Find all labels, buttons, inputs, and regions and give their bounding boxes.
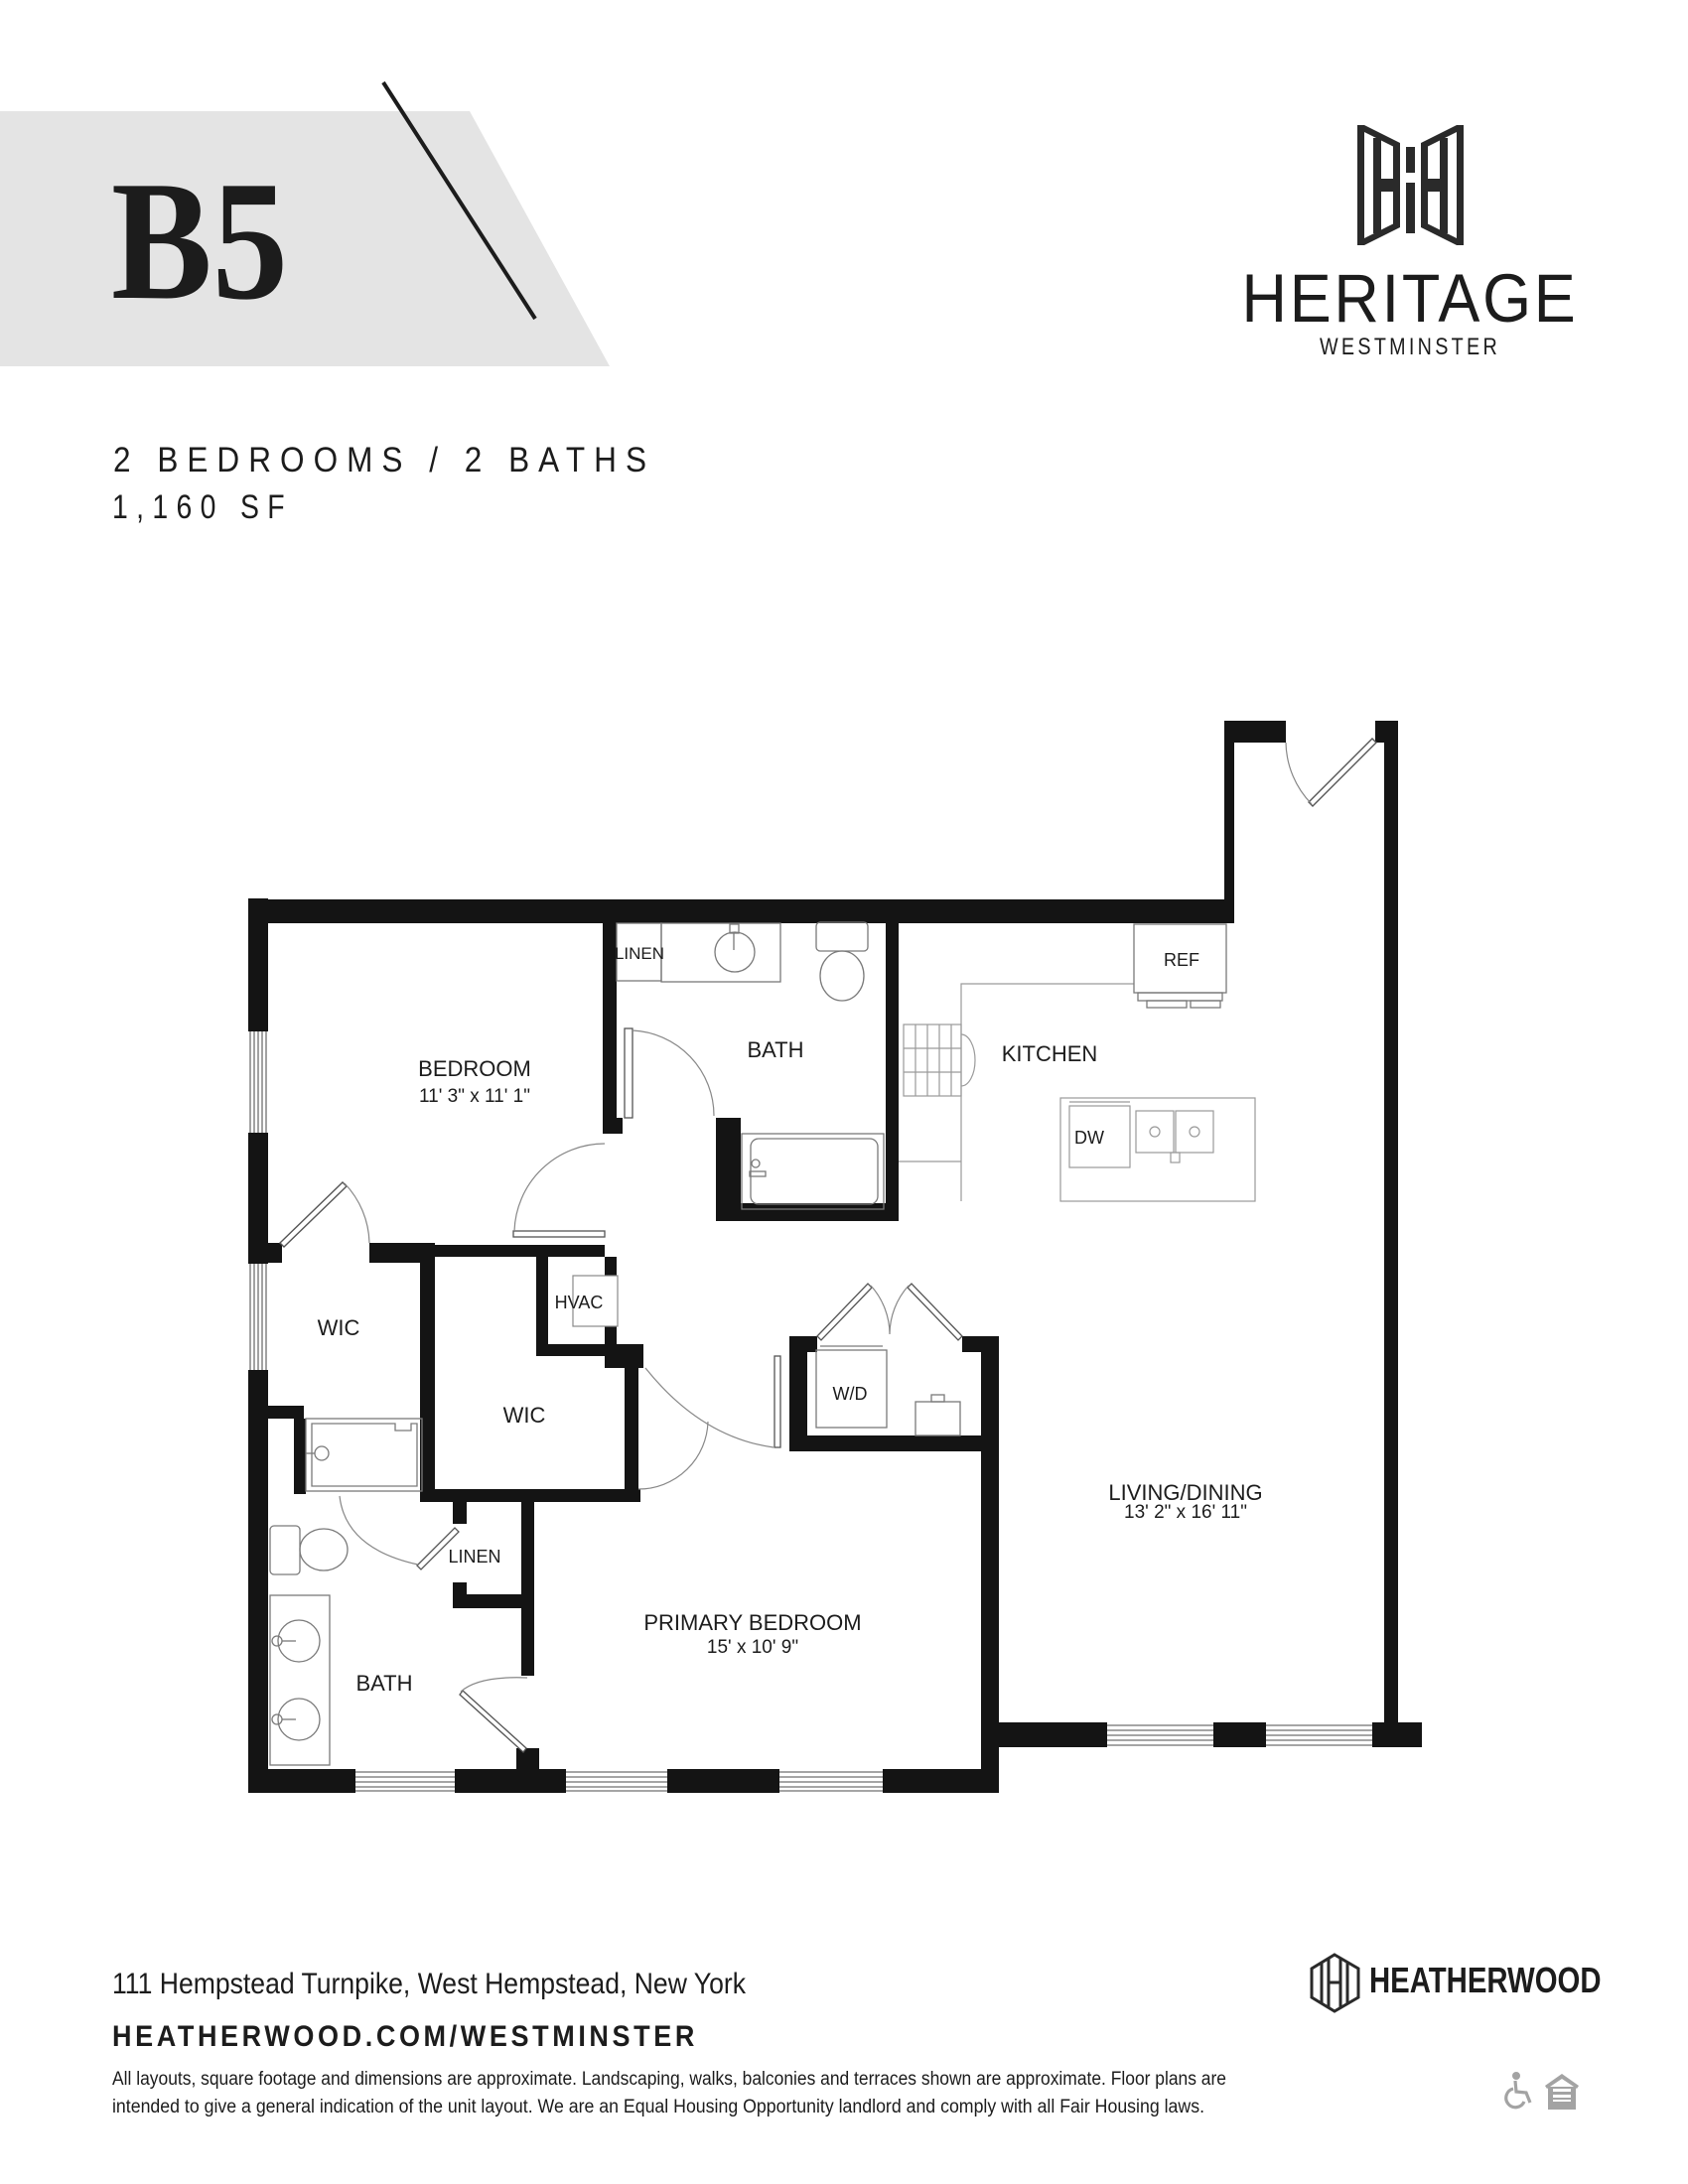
svg-text:111 Hempstead Turnpike, West H: 111 Hempstead Turnpike, West Hempstead, … bbox=[112, 1968, 747, 2000]
svg-text:HEATHERWOOD.COM/WESTMINSTER: HEATHERWOOD.COM/WESTMINSTER bbox=[112, 2020, 698, 2053]
svg-text:WIC: WIC bbox=[503, 1403, 546, 1428]
svg-text:2 BEDROOMS / 2 BATHS: 2 BEDROOMS / 2 BATHS bbox=[113, 441, 655, 479]
svg-text:BATH: BATH bbox=[747, 1037, 803, 1062]
svg-text:KITCHEN: KITCHEN bbox=[1002, 1041, 1098, 1066]
svg-text:B5: B5 bbox=[111, 147, 288, 336]
svg-text:13' 2" x 16' 11": 13' 2" x 16' 11" bbox=[1124, 1502, 1247, 1523]
svg-text:1,160 SF: 1,160 SF bbox=[112, 488, 293, 526]
svg-text:LINEN: LINEN bbox=[448, 1547, 500, 1567]
svg-text:LINEN: LINEN bbox=[615, 944, 664, 963]
svg-text:PRIMARY BEDROOM: PRIMARY BEDROOM bbox=[643, 1610, 861, 1635]
svg-text:11' 3" x 11' 1": 11' 3" x 11' 1" bbox=[419, 1086, 530, 1107]
svg-text:WESTMINSTER: WESTMINSTER bbox=[1320, 334, 1500, 360]
svg-text:HERITAGE: HERITAGE bbox=[1242, 260, 1579, 337]
svg-text:HEATHERWOOD: HEATHERWOOD bbox=[1369, 1960, 1602, 2000]
svg-text:W/D: W/D bbox=[833, 1384, 868, 1404]
svg-text:15' x 10' 9": 15' x 10' 9" bbox=[707, 1637, 798, 1658]
svg-text:BEDROOM: BEDROOM bbox=[418, 1056, 531, 1081]
svg-text:intended to give a general ind: intended to give a general indication of… bbox=[112, 2097, 1204, 2117]
svg-text:BATH: BATH bbox=[355, 1671, 412, 1696]
svg-text:DW: DW bbox=[1074, 1128, 1104, 1148]
svg-text:REF: REF bbox=[1164, 950, 1199, 970]
svg-text:HVAC: HVAC bbox=[555, 1293, 604, 1312]
svg-text:All layouts, square footage an: All layouts, square footage and dimensio… bbox=[112, 2069, 1226, 2090]
svg-text:WIC: WIC bbox=[318, 1315, 360, 1340]
